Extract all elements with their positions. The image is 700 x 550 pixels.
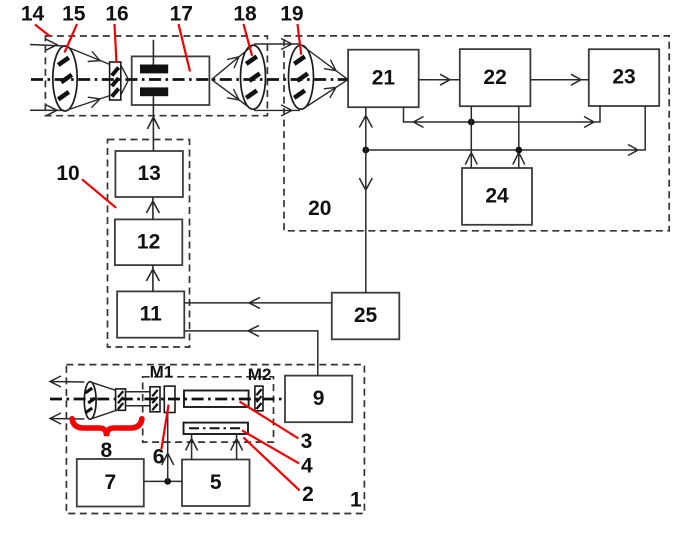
svg-text:22: 22 xyxy=(483,66,506,89)
svg-text:15: 15 xyxy=(62,2,86,25)
svg-text:6: 6 xyxy=(153,446,165,469)
svg-text:16: 16 xyxy=(105,2,128,25)
svg-text:19: 19 xyxy=(280,2,303,25)
svg-text:17: 17 xyxy=(170,2,193,25)
svg-text:3: 3 xyxy=(301,430,313,453)
svg-text:14: 14 xyxy=(21,2,45,25)
svg-text:8: 8 xyxy=(101,439,113,462)
svg-text:13: 13 xyxy=(137,162,160,185)
svg-text:M2: M2 xyxy=(248,365,272,384)
svg-text:1: 1 xyxy=(350,489,362,512)
svg-text:20: 20 xyxy=(308,197,331,220)
svg-text:18: 18 xyxy=(233,2,257,25)
svg-text:4: 4 xyxy=(301,455,313,478)
svg-text:10: 10 xyxy=(56,162,79,185)
svg-text:25: 25 xyxy=(354,304,378,327)
svg-text:21: 21 xyxy=(372,67,396,90)
svg-text:9: 9 xyxy=(313,387,325,410)
svg-text:5: 5 xyxy=(210,471,222,494)
svg-text:M1: M1 xyxy=(150,362,174,381)
svg-text:7: 7 xyxy=(104,471,116,494)
svg-text:12: 12 xyxy=(137,230,160,253)
svg-text:11: 11 xyxy=(140,303,163,326)
svg-text:2: 2 xyxy=(302,483,314,506)
svg-text:24: 24 xyxy=(485,185,509,208)
svg-text:23: 23 xyxy=(612,66,635,89)
